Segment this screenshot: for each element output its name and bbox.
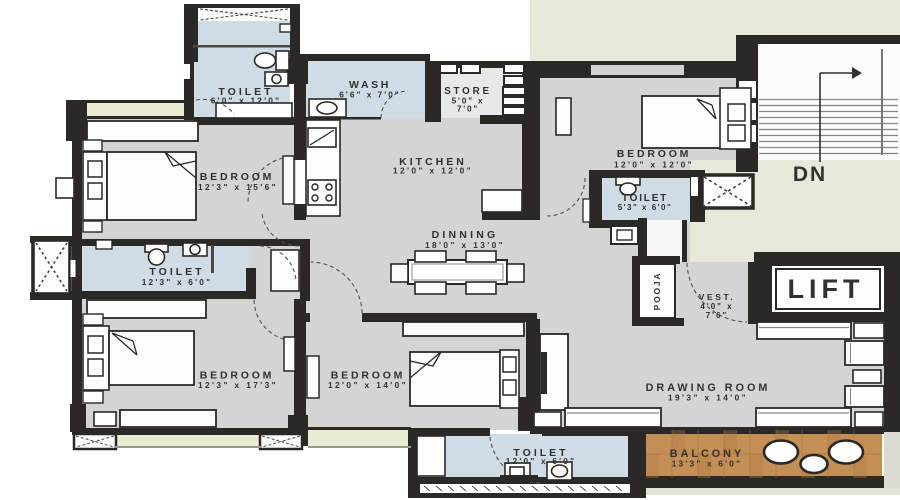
svg-text:18'0" x 13'0": 18'0" x 13'0" (425, 240, 505, 250)
svg-text:12'0" x 14'0": 12'0" x 14'0" (328, 380, 408, 390)
svg-text:6'0" x 12'0": 6'0" x 12'0" (211, 96, 282, 106)
svg-text:7'0": 7'0" (457, 104, 479, 114)
svg-text:13'3" x 6'0": 13'3" x 6'0" (672, 459, 743, 469)
svg-text:12'3" x 15'6": 12'3" x 15'6" (198, 182, 278, 192)
svg-text:12'0" x 12'0": 12'0" x 12'0" (393, 166, 473, 176)
svg-text:12'0" x 6'0": 12'0" x 6'0" (506, 456, 577, 466)
svg-text:19'3" x 14'0": 19'3" x 14'0" (668, 393, 748, 403)
svg-text:LIFT: LIFT (788, 274, 865, 304)
svg-text:6'6" x 7'0": 6'6" x 7'0" (339, 90, 401, 100)
svg-text:4'0" x: 4'0" x (700, 302, 733, 311)
svg-text:BEDROOM: BEDROOM (617, 148, 691, 160)
svg-text:5'3" x 6'0": 5'3" x 6'0" (618, 203, 673, 212)
svg-text:12'3" x 17'3": 12'3" x 17'3" (198, 380, 278, 390)
svg-text:DN: DN (793, 163, 827, 186)
svg-text:12'0" x 12'0": 12'0" x 12'0" (614, 160, 694, 170)
svg-text:VEST.: VEST. (699, 292, 736, 302)
svg-text:7'6": 7'6" (706, 311, 729, 320)
svg-text:POOJA: POOJA (652, 272, 662, 311)
svg-text:12'3" x 6'0": 12'3" x 6'0" (142, 277, 213, 287)
